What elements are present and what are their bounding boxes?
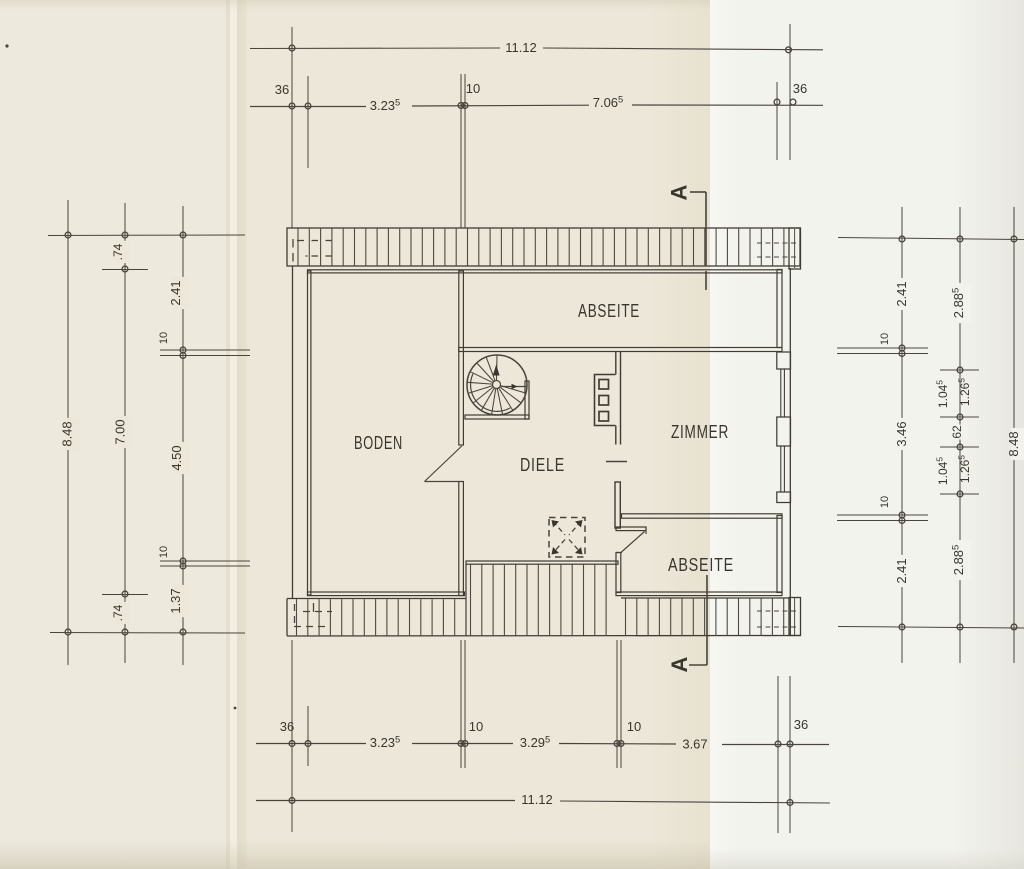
svg-text:36: 36 <box>793 81 807 96</box>
svg-text:10: 10 <box>158 332 170 344</box>
svg-text:10: 10 <box>469 719 483 734</box>
svg-text:36: 36 <box>275 82 289 97</box>
svg-text:.74: .74 <box>111 243 125 260</box>
svg-text:A: A <box>667 184 692 200</box>
svg-text:BODEN: BODEN <box>354 432 403 453</box>
svg-text:ABSEITE: ABSEITE <box>578 300 640 321</box>
svg-text:8.48: 8.48 <box>1006 431 1021 456</box>
svg-text:2.41: 2.41 <box>168 280 183 305</box>
svg-text:DIELE: DIELE <box>520 454 565 475</box>
svg-text:10: 10 <box>879 496 891 508</box>
svg-text:2.41: 2.41 <box>894 558 909 583</box>
svg-text:11.12: 11.12 <box>505 40 537 55</box>
svg-text:.74: .74 <box>111 604 125 621</box>
svg-text:1.37: 1.37 <box>168 588 183 613</box>
svg-text:A: A <box>667 656 692 672</box>
svg-text:ZIMMER: ZIMMER <box>671 421 729 442</box>
svg-text:7.00: 7.00 <box>113 419 128 444</box>
svg-text:3.46: 3.46 <box>894 421 909 446</box>
svg-text:10: 10 <box>466 81 480 96</box>
svg-text:62: 62 <box>950 425 964 439</box>
svg-text:3.67: 3.67 <box>682 737 707 752</box>
svg-text:10: 10 <box>879 333 891 345</box>
svg-text:4.50: 4.50 <box>169 445 184 470</box>
svg-text:2.41: 2.41 <box>894 281 909 306</box>
svg-text:11.12: 11.12 <box>521 792 553 807</box>
svg-text:8.48: 8.48 <box>60 421 75 446</box>
svg-text:36: 36 <box>794 717 808 732</box>
svg-text:10: 10 <box>158 546 170 558</box>
svg-text:10: 10 <box>627 719 641 734</box>
svg-text:ABSEITE: ABSEITE <box>668 554 734 575</box>
